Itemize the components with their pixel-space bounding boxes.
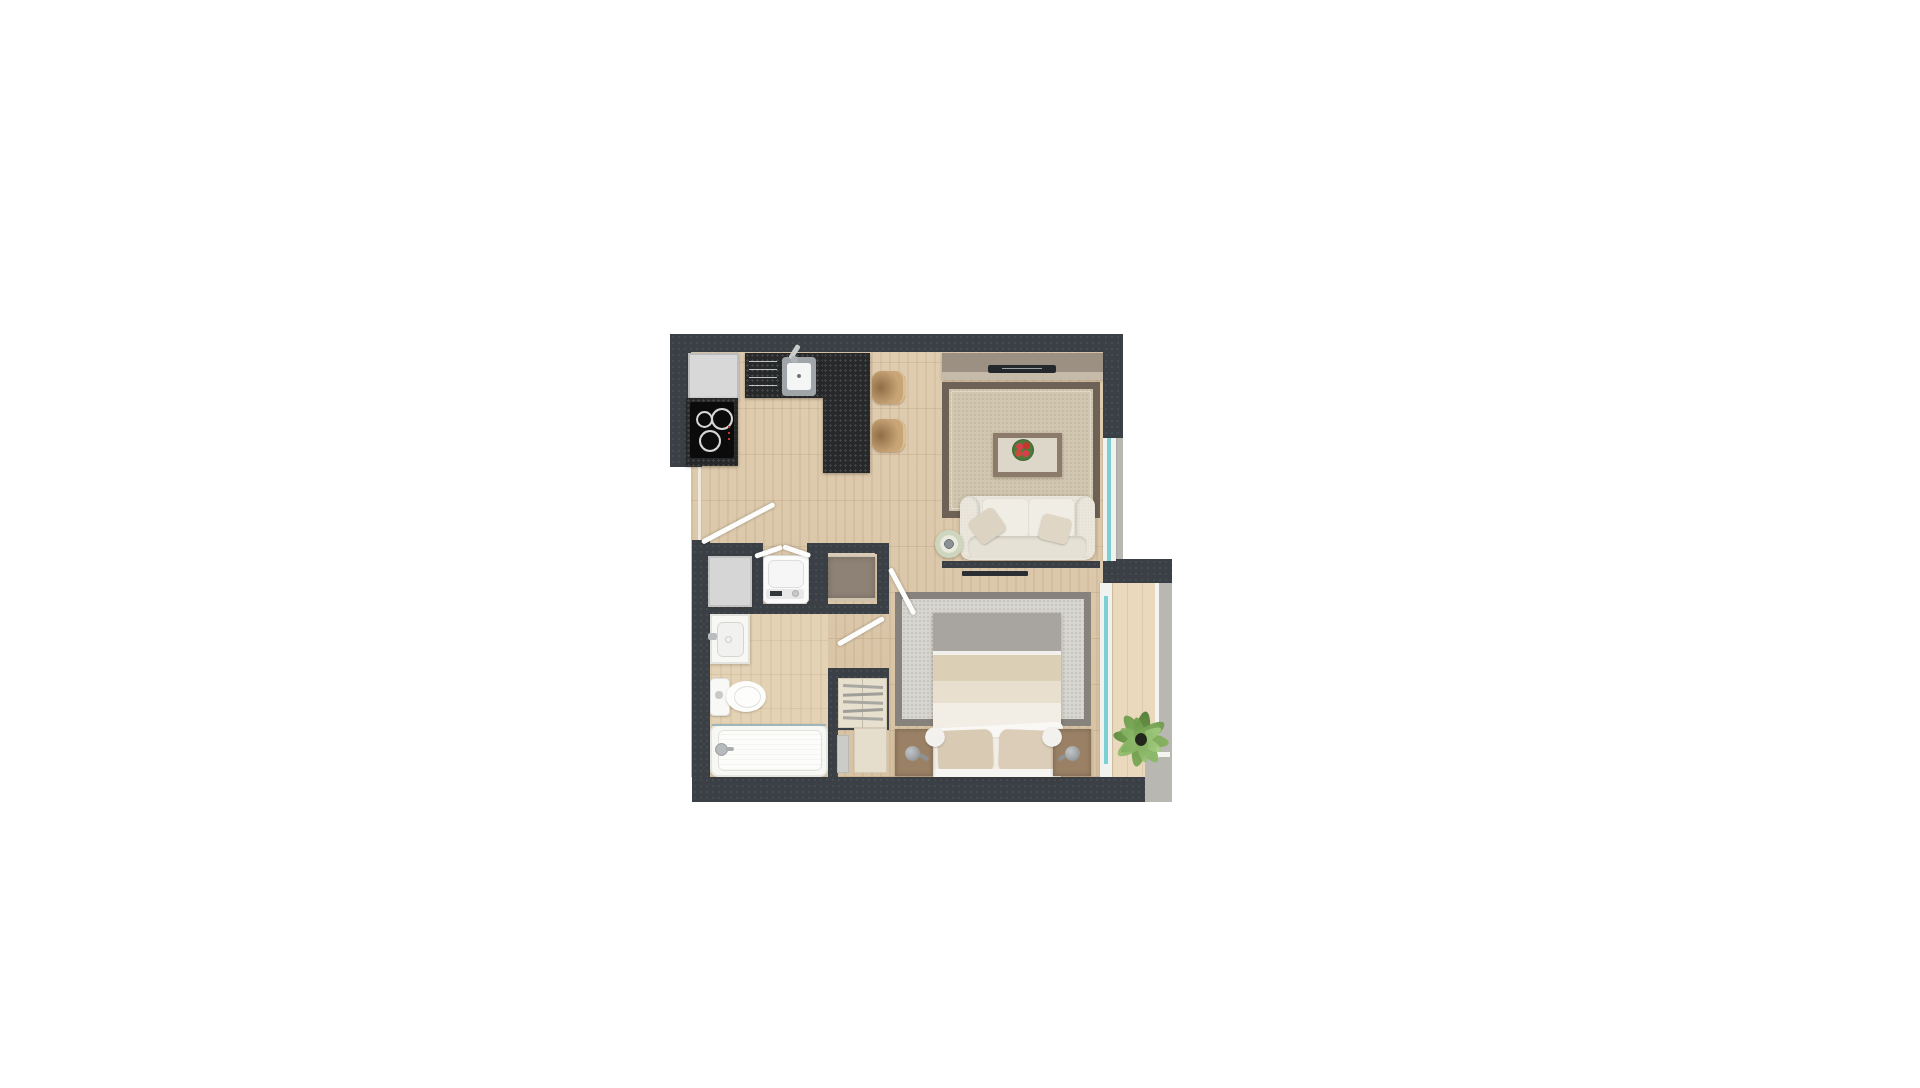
wall-top	[670, 334, 1123, 352]
flower-bouquet	[1012, 439, 1034, 461]
lamp-shade-left	[925, 727, 945, 747]
basin-faucet	[708, 633, 717, 640]
toilet	[710, 678, 766, 714]
bar-stool-1	[872, 371, 905, 404]
cooktop-indicator	[728, 426, 730, 428]
apartment-floor-plan	[668, 334, 1178, 804]
washer-lid	[768, 560, 804, 588]
duvet-stripe-light	[933, 681, 1061, 703]
sink-drain	[797, 374, 801, 378]
lamp-ball-left	[905, 746, 920, 761]
refrigerator	[688, 353, 739, 400]
wall-post-c	[877, 543, 889, 613]
breakfast-bar	[823, 353, 870, 473]
bar-stool-2	[872, 419, 905, 452]
washbasin	[710, 614, 750, 664]
plant-pot	[1135, 733, 1147, 746]
living-window-sill	[1116, 438, 1123, 561]
washer-knob	[792, 590, 799, 597]
drawer-line	[749, 377, 777, 378]
potted-plant	[1106, 702, 1176, 776]
wardrobe-shelf	[843, 700, 883, 704]
bathtub-basin	[718, 730, 822, 771]
wall-post-b	[807, 543, 828, 605]
wardrobe-open-shelves	[838, 678, 887, 728]
bedroom-wall-tv	[962, 571, 1028, 576]
wardrobe-shelf	[843, 716, 883, 720]
washing-machine	[763, 555, 809, 604]
cooktop	[690, 402, 734, 458]
coffee-table	[993, 433, 1062, 477]
wall-right-upper	[1103, 334, 1123, 438]
kitchen-sink	[782, 357, 816, 396]
bathtub	[710, 724, 828, 777]
wardrobe-shelf	[843, 708, 883, 713]
living-window-glass	[1107, 438, 1111, 561]
lamp-shade-right	[1042, 727, 1062, 747]
toilet-flush-button	[715, 691, 723, 699]
wardrobe-shelf	[843, 684, 883, 689]
cooktop-indicator	[728, 438, 730, 440]
wall-balcony-top-chunk	[1103, 559, 1172, 583]
headboard	[933, 769, 1061, 777]
bed-pillow-left	[937, 729, 993, 773]
storage-cabinet	[708, 556, 752, 607]
wardrobe-shelf	[843, 692, 883, 696]
drawer-line	[749, 369, 777, 370]
wardrobe-lower-panel	[854, 728, 887, 773]
burner-bottom	[699, 430, 721, 452]
duvet-stripe-gray	[933, 613, 1061, 651]
double-bed	[933, 613, 1061, 777]
cooktop-indicator	[728, 432, 730, 434]
round-side-table	[935, 530, 963, 558]
side-table-center	[944, 539, 954, 549]
duvet-stripe-cream	[933, 655, 1061, 681]
sofa	[960, 496, 1095, 560]
dresser-trim-bottom	[828, 598, 875, 601]
floor-plan-canvas	[0, 0, 1920, 1088]
bathtub-spout	[726, 747, 734, 751]
dresser	[828, 557, 875, 598]
drawer-line	[749, 385, 777, 386]
wall-bottom	[692, 777, 1145, 802]
wall-half-console	[942, 561, 1100, 568]
wardrobe-gray-strip	[837, 735, 849, 773]
lamp-ball-right	[1065, 746, 1080, 761]
drawer-line	[749, 361, 777, 362]
basin-drain	[725, 636, 732, 643]
wall-hall-row	[692, 543, 748, 556]
tv-frame-line	[1002, 368, 1042, 369]
bathtub-glass-screen	[712, 724, 826, 726]
sink-faucet-base	[791, 356, 798, 363]
entry-threshold	[698, 465, 701, 541]
washer-display	[770, 591, 782, 596]
tv-flatscreen	[988, 365, 1056, 373]
toilet-bowl-inner	[734, 686, 761, 708]
